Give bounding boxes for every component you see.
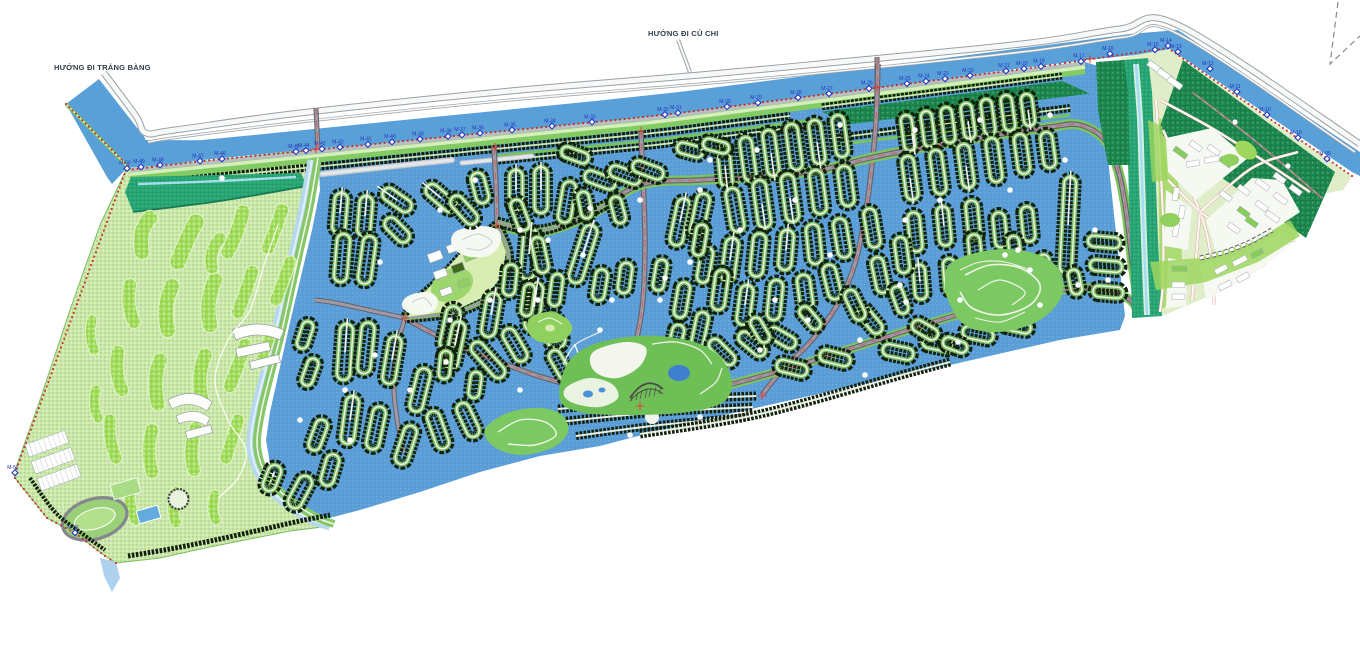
svg-text:M-31: M-31 [670, 105, 682, 111]
svg-text:M-46: M-46 [214, 151, 226, 157]
svg-text:M-09: M-09 [1319, 151, 1331, 157]
svg-text:M-10: M-10 [1290, 130, 1302, 136]
svg-text:M-41: M-41 [360, 137, 372, 143]
svg-text:M-11: M-11 [1229, 84, 1240, 90]
svg-text:M-32: M-32 [657, 107, 669, 113]
svg-text:M-33: M-33 [584, 114, 596, 120]
svg-text:HƯỚNG ĐI TRẢNG BÀNG: HƯỚNG ĐI TRẢNG BÀNG [54, 63, 151, 72]
svg-text:M-25: M-25 [899, 76, 911, 82]
svg-text:M-44: M-44 [298, 143, 310, 149]
svg-text:M-12: M-12 [1202, 61, 1214, 67]
svg-text:M-22: M-22 [962, 68, 974, 74]
svg-text:M-40: M-40 [384, 134, 396, 140]
svg-text:M-30: M-30 [719, 99, 731, 105]
svg-text:M-16: M-16 [1102, 46, 1114, 52]
svg-text:M-35: M-35 [504, 122, 516, 128]
svg-text:M-42: M-42 [332, 139, 344, 145]
svg-text:M-47: M-47 [192, 153, 204, 159]
svg-text:M-36: M-36 [472, 125, 484, 131]
svg-text:M-21: M-21 [998, 63, 1010, 69]
svg-text:M-24: M-24 [918, 73, 930, 79]
svg-text:M-48: M-48 [152, 157, 164, 163]
svg-text:M-38: M-38 [440, 129, 452, 135]
svg-text:M-20: M-20 [1016, 61, 1028, 67]
svg-text:M-28: M-28 [790, 90, 802, 96]
svg-text:M-23: M-23 [937, 71, 949, 77]
svg-text:M-50: M-50 [119, 161, 131, 167]
svg-text:M-26: M-26 [861, 81, 873, 87]
svg-text:M-39: M-39 [412, 131, 424, 137]
svg-text:M-51: M-51 [7, 465, 19, 471]
svg-text:M-29: M-29 [750, 95, 762, 101]
svg-text:M-13: M-13 [1170, 44, 1182, 50]
svg-text:M-49: M-49 [133, 159, 145, 165]
svg-text:M-27: M-27 [821, 86, 833, 92]
svg-text:M-52: M-52 [67, 525, 79, 531]
svg-text:M-10: M-10 [1259, 107, 1271, 113]
svg-text:M-17: M-17 [1073, 54, 1085, 60]
svg-text:M-15: M-15 [1147, 42, 1159, 48]
svg-text:M-34: M-34 [544, 118, 556, 124]
svg-text:M-18: M-18 [1033, 59, 1045, 65]
svg-text:HƯỚNG ĐI CỦ CHI: HƯỚNG ĐI CỦ CHI [648, 29, 719, 38]
svg-text:M-37: M-37 [454, 127, 466, 133]
